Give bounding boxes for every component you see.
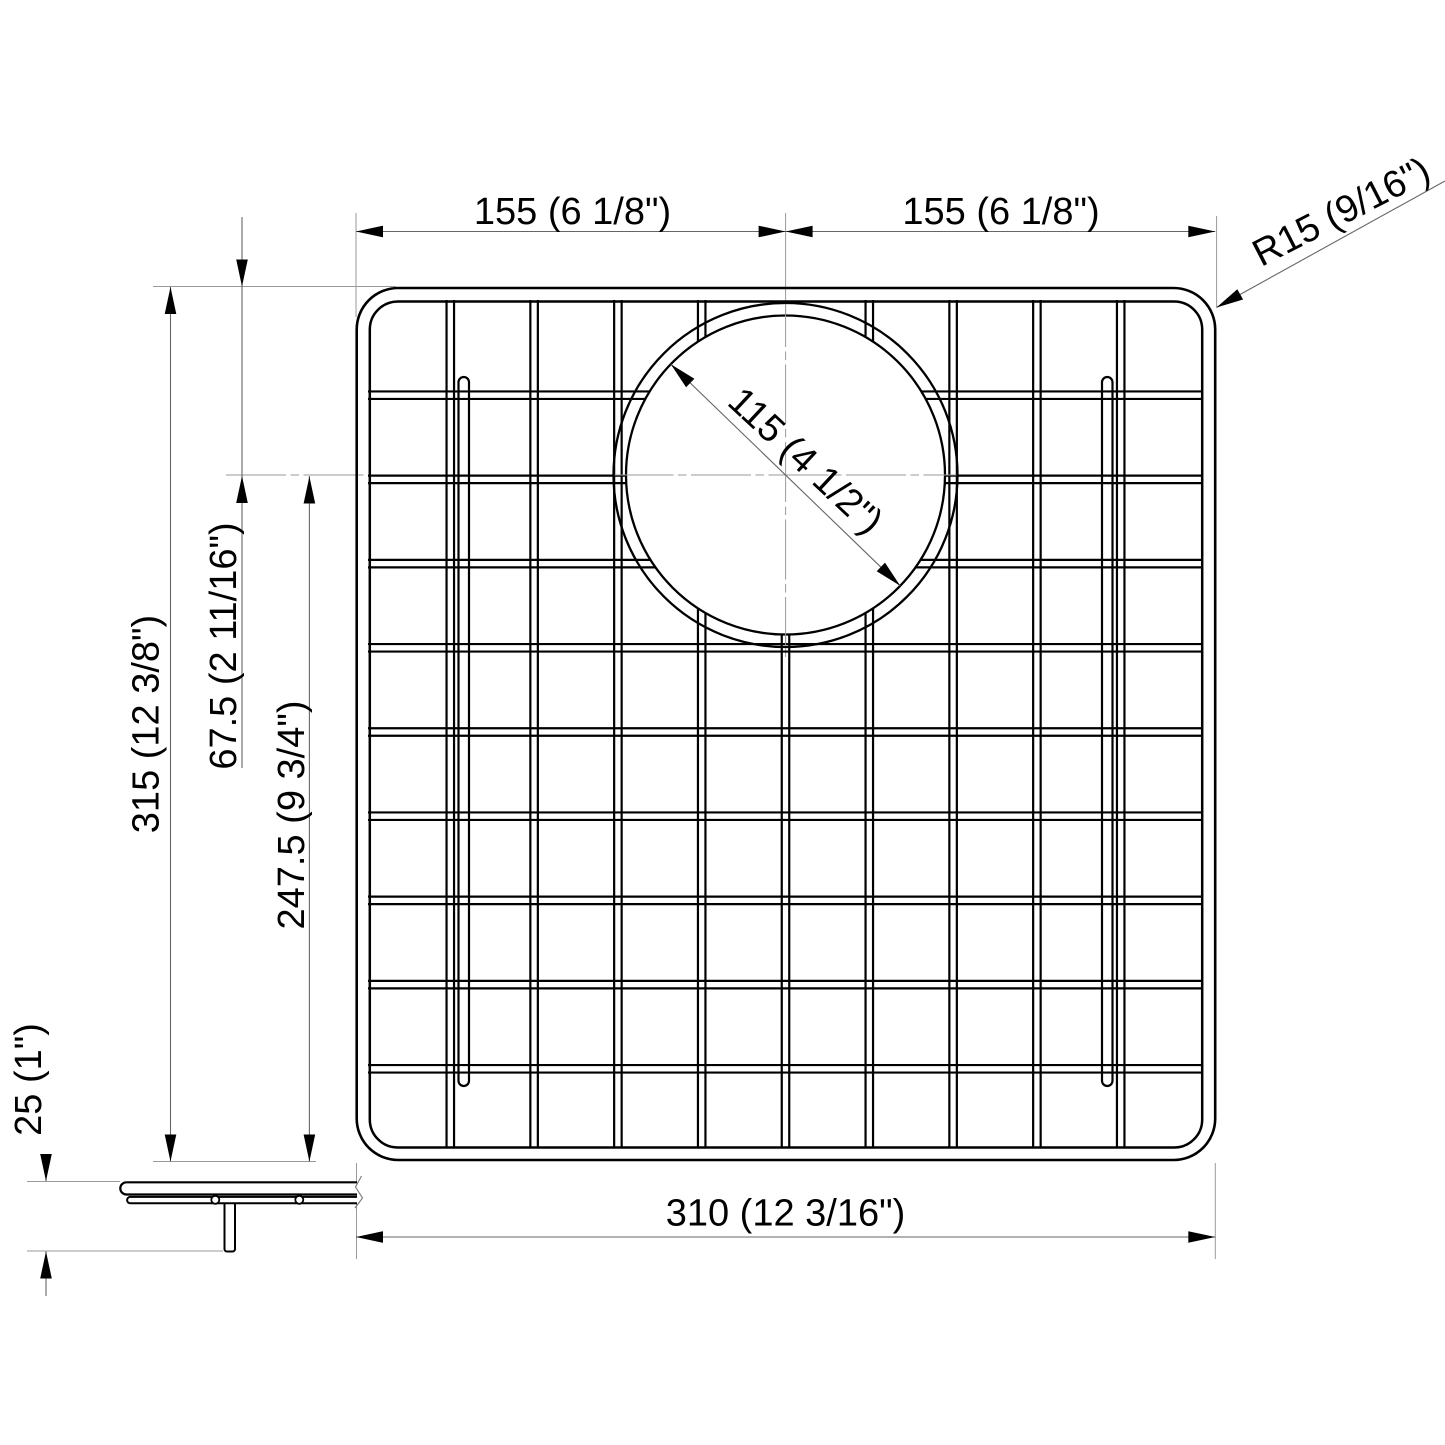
svg-text:67.5 (2 11/16"): 67.5 (2 11/16")	[203, 522, 245, 769]
svg-text:155 (6 1/8"): 155 (6 1/8")	[474, 191, 671, 233]
svg-text:25 (1"): 25 (1")	[8, 1023, 50, 1136]
svg-text:155 (6 1/8"): 155 (6 1/8")	[902, 191, 1099, 233]
svg-text:315 (12 3/8"): 315 (12 3/8")	[126, 615, 168, 833]
svg-text:247.5 (9 3/4"): 247.5 (9 3/4")	[271, 701, 313, 930]
svg-text:310 (12 3/16"): 310 (12 3/16")	[666, 1193, 906, 1235]
